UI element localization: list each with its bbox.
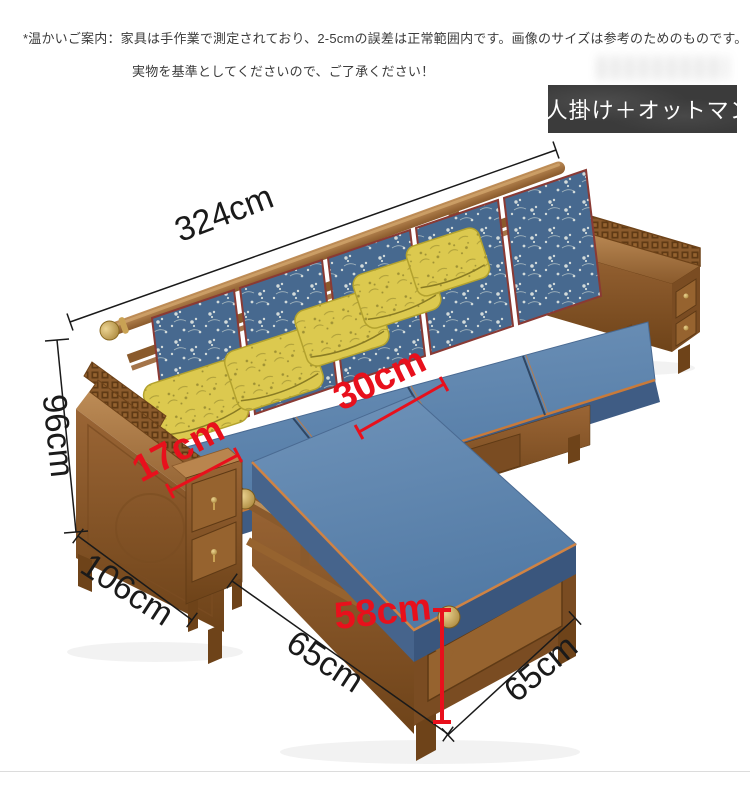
back-cushion (504, 170, 601, 324)
bottom-separator-line (0, 771, 750, 772)
dimension-label-total-width: 324cm (170, 178, 279, 250)
dimension-label-back-height: 96cm (35, 393, 81, 480)
sofa-illustration: 324cm 96cm 106cm 65cm 65cm 17cm 30cm 58c… (0, 0, 750, 795)
product-size-sheet: *温かいご案内：家具は手作業で測定されており、2-5cmの誤差は正常範囲内です。… (0, 0, 750, 795)
